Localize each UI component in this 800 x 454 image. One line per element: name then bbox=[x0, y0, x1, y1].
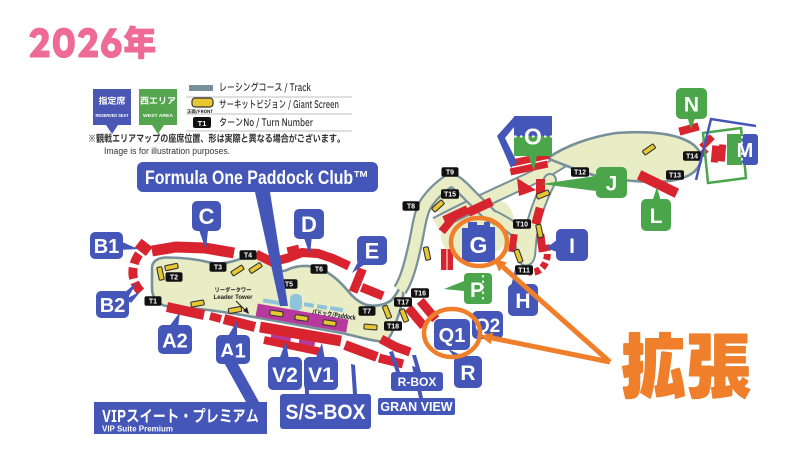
svg-text:L: L bbox=[650, 205, 663, 228]
svg-text:T9: T9 bbox=[446, 170, 454, 177]
svg-text:T6: T6 bbox=[315, 267, 323, 274]
svg-text:G: G bbox=[470, 232, 488, 258]
svg-text:T16: T16 bbox=[414, 291, 426, 298]
svg-text:C: C bbox=[199, 204, 215, 229]
svg-text:T4: T4 bbox=[244, 253, 252, 260]
svg-text:R-BOX: R-BOX bbox=[398, 375, 437, 389]
svg-text:Formula One Paddock Club™: Formula One Paddock Club™ bbox=[145, 168, 369, 189]
svg-text:A2: A2 bbox=[162, 331, 188, 353]
svg-text:V1: V1 bbox=[308, 364, 334, 387]
svg-text:B2: B2 bbox=[100, 295, 126, 317]
svg-text:M: M bbox=[737, 140, 754, 162]
svg-text:T13: T13 bbox=[669, 173, 681, 180]
svg-text:H: H bbox=[515, 290, 530, 313]
svg-text:T10: T10 bbox=[516, 222, 528, 229]
svg-text:T3: T3 bbox=[214, 265, 222, 272]
svg-text:T15: T15 bbox=[444, 192, 456, 199]
svg-text:P: P bbox=[470, 279, 484, 302]
svg-text:RESERVED SEAT: RESERVED SEAT bbox=[96, 113, 129, 119]
svg-text:Leader Tower: Leader Tower bbox=[214, 294, 253, 301]
svg-text:T2: T2 bbox=[170, 275, 178, 282]
svg-text:I: I bbox=[569, 235, 575, 258]
svg-text:B1: B1 bbox=[94, 236, 120, 258]
svg-text:R: R bbox=[460, 362, 475, 385]
svg-text:T14: T14 bbox=[686, 154, 698, 161]
svg-text:T8: T8 bbox=[407, 204, 415, 211]
svg-text:WEST AREA: WEST AREA bbox=[143, 113, 174, 119]
svg-text:T7: T7 bbox=[363, 309, 371, 316]
svg-text:T17: T17 bbox=[397, 300, 409, 307]
svg-text:J: J bbox=[606, 173, 618, 196]
svg-text:T1: T1 bbox=[198, 119, 207, 128]
svg-text:T1: T1 bbox=[149, 299, 157, 306]
svg-text:T12: T12 bbox=[574, 170, 586, 177]
svg-text:T18: T18 bbox=[387, 324, 399, 331]
svg-text:Image is for illustration purp: Image is for illustration purposes. bbox=[104, 146, 230, 156]
svg-text:N: N bbox=[684, 94, 699, 117]
svg-text:O: O bbox=[524, 124, 542, 150]
svg-text:S/S-BOX: S/S-BOX bbox=[286, 401, 366, 424]
svg-text:D: D bbox=[301, 212, 317, 237]
svg-text:VIP Suite Premium: VIP Suite Premium bbox=[102, 425, 173, 434]
svg-text:Q1: Q1 bbox=[439, 325, 466, 347]
svg-text:T5: T5 bbox=[285, 282, 293, 289]
svg-text:V2: V2 bbox=[272, 364, 298, 387]
svg-text:E: E bbox=[365, 239, 380, 264]
svg-text:T11: T11 bbox=[518, 268, 530, 275]
svg-text:GRAN VIEW: GRAN VIEW bbox=[380, 400, 452, 414]
